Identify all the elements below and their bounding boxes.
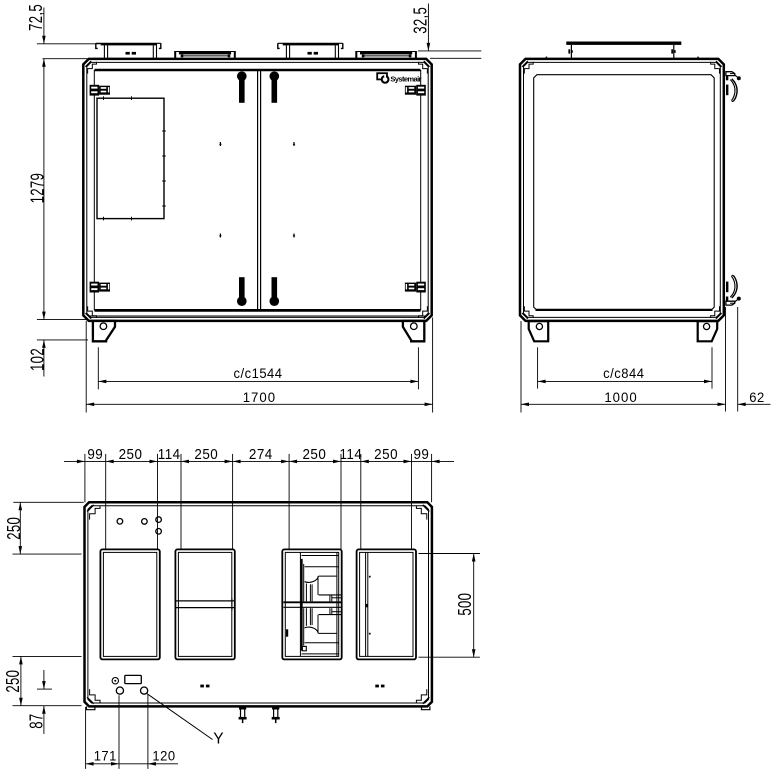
svg-text:1700: 1700 bbox=[243, 390, 276, 405]
svg-text:c/c844: c/c844 bbox=[603, 366, 644, 381]
svg-text:114: 114 bbox=[158, 445, 181, 462]
svg-text:102: 102 bbox=[28, 348, 47, 371]
svg-text:250: 250 bbox=[4, 670, 23, 693]
svg-text:32,5: 32,5 bbox=[411, 7, 430, 34]
svg-text:c/c1544: c/c1544 bbox=[233, 366, 282, 381]
svg-text:87: 87 bbox=[27, 713, 46, 728]
svg-text:114: 114 bbox=[339, 445, 362, 462]
svg-text:500: 500 bbox=[456, 593, 475, 616]
svg-text:99: 99 bbox=[87, 445, 103, 462]
svg-text:99: 99 bbox=[413, 445, 429, 462]
svg-text:Y: Y bbox=[213, 731, 224, 748]
svg-text:1279: 1279 bbox=[29, 173, 48, 204]
svg-text:171: 171 bbox=[94, 748, 117, 763]
svg-text:Systemair: Systemair bbox=[390, 74, 421, 83]
svg-text:250: 250 bbox=[194, 445, 218, 462]
svg-text:120: 120 bbox=[152, 748, 175, 763]
svg-text:250: 250 bbox=[374, 445, 398, 462]
svg-text:250: 250 bbox=[5, 517, 24, 540]
svg-text:1000: 1000 bbox=[604, 390, 637, 405]
svg-text:250: 250 bbox=[119, 445, 143, 462]
svg-text:62: 62 bbox=[749, 390, 764, 405]
svg-text:72,5: 72,5 bbox=[27, 4, 46, 31]
svg-text:274: 274 bbox=[249, 445, 273, 462]
svg-text:250: 250 bbox=[302, 445, 326, 462]
